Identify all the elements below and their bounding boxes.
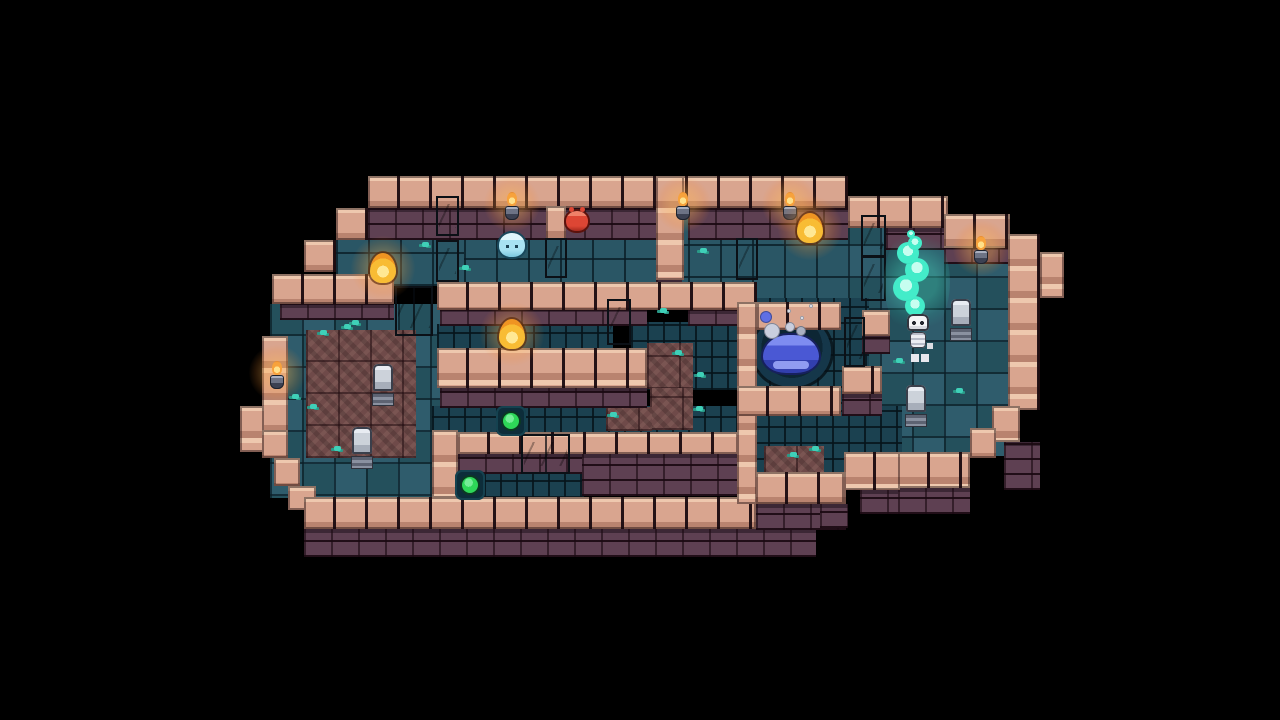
wall-cap-block	[992, 406, 1020, 442]
moss-decal-icon	[956, 388, 963, 393]
wall-cap-block	[437, 348, 647, 388]
wall-cap-block	[437, 282, 757, 310]
wall-face-block	[688, 310, 737, 326]
moss-decal-icon	[292, 394, 299, 399]
player-skeleton	[903, 314, 933, 368]
bubble-icon	[764, 323, 780, 339]
flame-orb-icon	[370, 253, 396, 283]
green-gate-icon	[736, 238, 758, 280]
floor-button-icon	[496, 406, 526, 436]
wall-cap-block	[1008, 234, 1040, 410]
wall-cap-block	[304, 240, 336, 272]
moss-decal-icon	[610, 412, 617, 417]
rubble-patch	[647, 343, 693, 389]
wall-cap-block	[336, 208, 368, 240]
green-gate-icon	[844, 317, 865, 367]
rubble-patch	[606, 407, 652, 431]
wall-stub-block	[546, 206, 566, 240]
moss-decal-icon	[790, 452, 797, 457]
red-gate-icon	[395, 286, 433, 336]
wall-face-block	[304, 529, 816, 557]
wall-cap-block	[737, 386, 841, 416]
wall-face-block	[860, 490, 900, 514]
torch-icon	[503, 192, 521, 220]
wall-cap-block	[898, 452, 970, 488]
green-gate-icon	[861, 215, 886, 257]
wall-cap-block	[1040, 252, 1064, 298]
blue-gate-icon	[436, 196, 459, 236]
moss-decal-icon	[422, 242, 429, 247]
lightblue-slime-icon	[499, 233, 525, 257]
blue-gate-icon	[545, 238, 567, 278]
wall-cap-block	[862, 310, 890, 336]
torch-icon	[268, 361, 286, 389]
torch-icon	[674, 192, 692, 220]
wall-cap-block	[304, 497, 756, 529]
bubble-icon	[760, 311, 772, 323]
bubble-icon	[787, 309, 791, 313]
moss-decal-icon	[660, 308, 667, 313]
blue-gate-icon	[521, 434, 570, 474]
moss-decal-icon	[896, 358, 903, 363]
soul-flame-icon	[908, 236, 922, 250]
bubble-icon	[800, 316, 804, 320]
dark-floor-region	[437, 324, 613, 350]
torch-icon	[972, 236, 990, 264]
wall-cap-block	[842, 366, 882, 394]
flame-orb-icon	[499, 319, 525, 349]
bubble-icon	[796, 326, 806, 336]
soul-flame-icon	[907, 230, 915, 238]
wall-face-block	[440, 388, 647, 408]
moss-decal-icon	[696, 406, 703, 411]
pool-slime-icon	[763, 335, 819, 373]
moss-decal-icon	[675, 350, 682, 355]
wall-face-block	[280, 304, 394, 320]
flame-orb-icon	[797, 213, 823, 243]
moss-decal-icon	[320, 330, 327, 335]
moss-decal-icon	[697, 372, 704, 377]
wall-face-block	[1004, 442, 1040, 490]
moss-decal-icon	[352, 320, 359, 325]
wall-face-block	[842, 394, 882, 416]
moss-decal-icon	[334, 446, 341, 451]
gravestone-icon	[373, 364, 393, 406]
red-slime-icon	[566, 211, 588, 231]
wall-cap-block	[844, 452, 900, 490]
yellow-gate-icon	[861, 256, 886, 301]
yellow-gate-icon	[436, 240, 459, 282]
bubble-icon	[785, 322, 795, 332]
moss-decal-icon	[344, 324, 351, 329]
gravestone-icon	[906, 385, 926, 427]
game-viewport[interactable]	[0, 0, 1280, 720]
moss-decal-icon	[700, 248, 707, 253]
gravestone-icon	[951, 299, 971, 341]
torch-icon	[781, 192, 799, 220]
wall-face-block	[688, 208, 848, 240]
gravestone-icon	[352, 427, 372, 469]
moss-decal-icon	[812, 446, 819, 451]
moss-decal-icon	[462, 265, 469, 270]
wall-face-block	[582, 454, 740, 496]
orange-gate-icon	[607, 299, 631, 345]
wall-face-block	[898, 488, 970, 514]
bubble-icon	[809, 304, 813, 308]
floor-button-icon	[455, 470, 485, 500]
wall-cap-block	[262, 430, 288, 458]
wall-cap-block	[240, 406, 264, 452]
wall-cap-block	[274, 458, 300, 486]
moss-decal-icon	[310, 404, 317, 409]
wall-cap-block	[756, 472, 844, 504]
rubble-patch	[650, 388, 693, 430]
wall-face-block	[862, 336, 890, 354]
wall-cap-block	[970, 428, 996, 458]
wall-face-block	[820, 504, 848, 528]
